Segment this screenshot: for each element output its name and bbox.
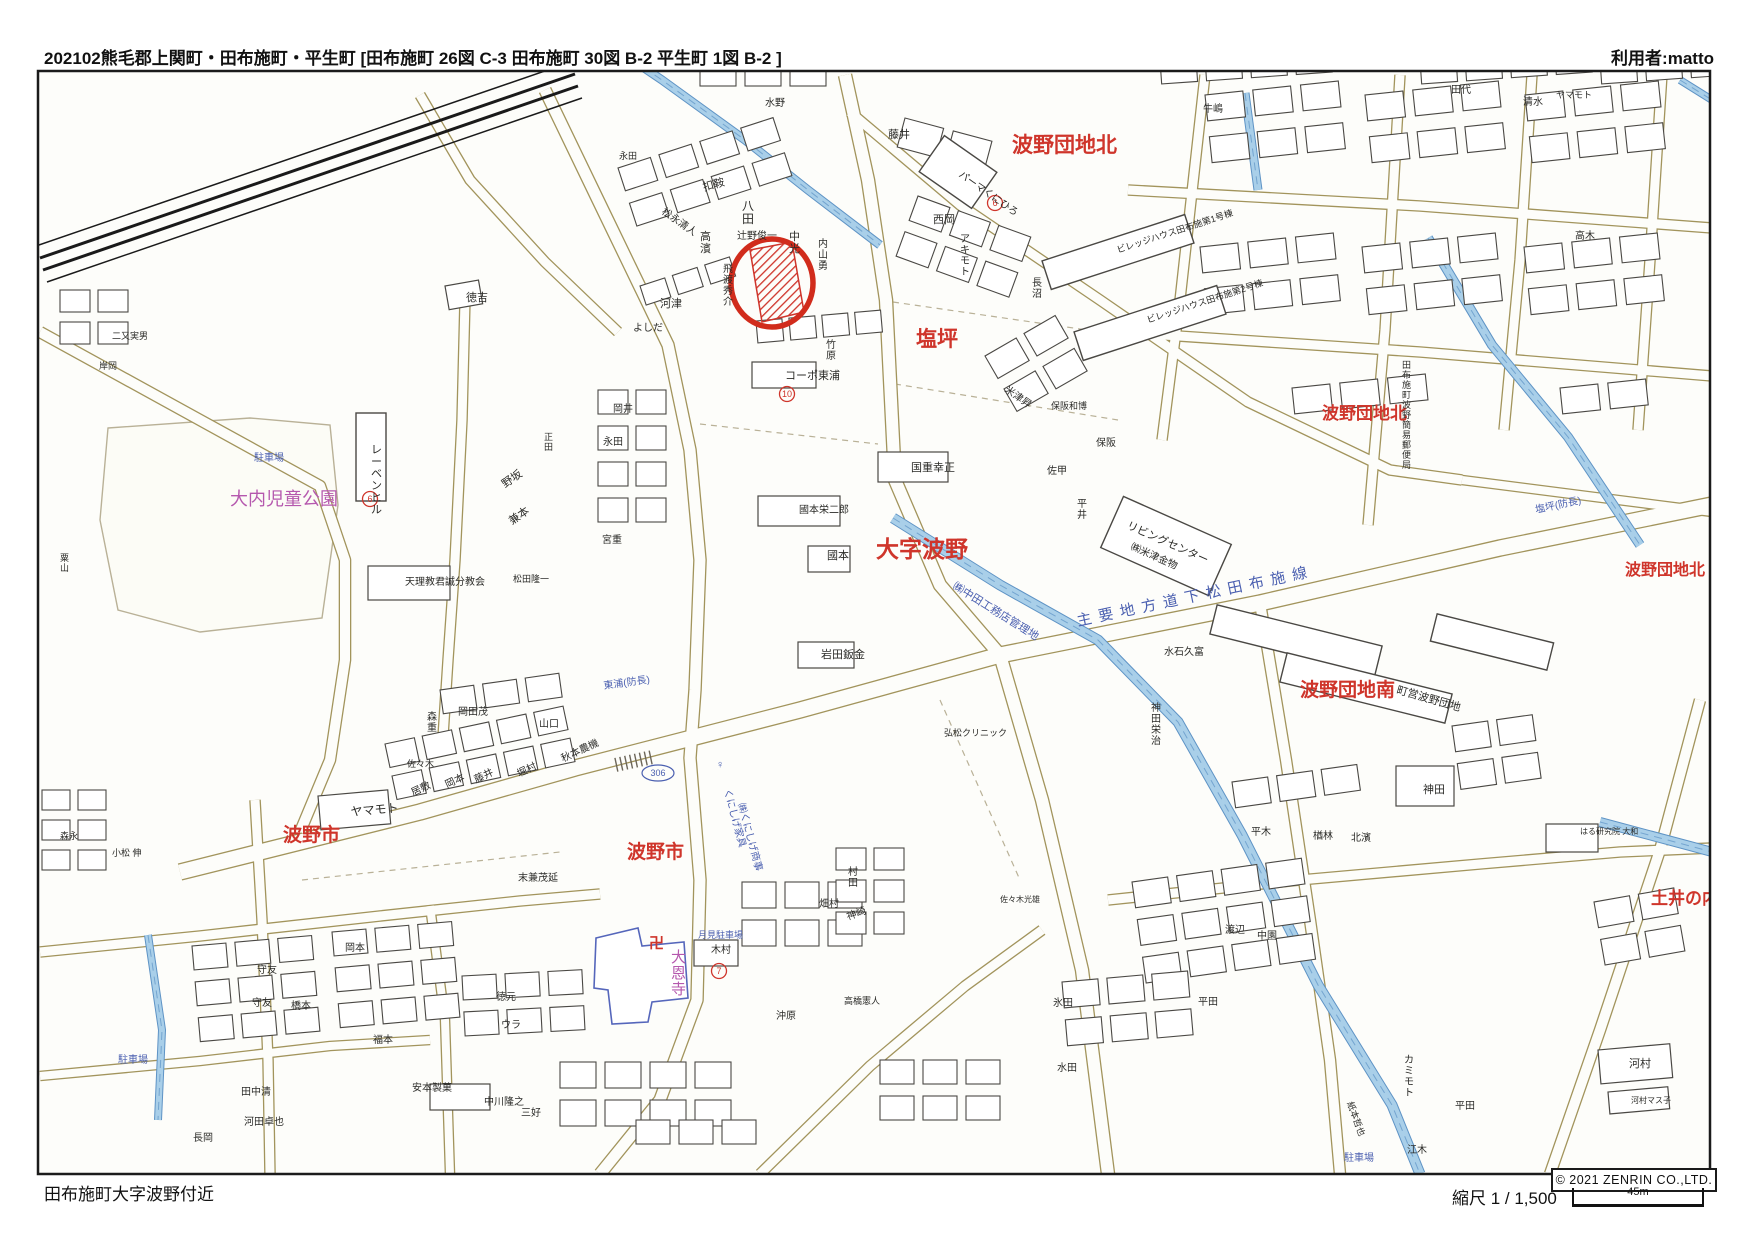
map-label: 長沼	[1032, 277, 1042, 300]
road-label: 駐車場	[1344, 1151, 1374, 1164]
map-label: 正田	[544, 432, 553, 452]
scale-label: 縮尺 1 / 1,500	[1452, 1184, 1557, 1209]
map-label: 八田	[742, 199, 754, 226]
map-label: 河津	[660, 297, 682, 310]
map-label: 楢林	[1313, 829, 1333, 842]
map-label: 平木	[1251, 826, 1271, 838]
map-label: 守友	[252, 996, 272, 1009]
map-label: 保阪和博	[1051, 400, 1087, 411]
map-label: 神田栄治	[1151, 701, 1161, 747]
district-label: 大字波野	[876, 536, 968, 562]
district-label: 塩坪	[916, 327, 958, 351]
road-label: 駐車場	[118, 1053, 148, 1066]
map-label: 森永	[60, 830, 78, 841]
svg-text:10: 10	[782, 389, 792, 399]
map-label: コーポ東浦	[785, 369, 840, 382]
map-label: 水野	[765, 97, 785, 109]
map-label: 徳元	[496, 990, 516, 1003]
map-label: 岸岡	[99, 361, 117, 371]
map-label: 守友	[257, 963, 277, 976]
map-label: 牛嶋	[1203, 102, 1223, 115]
map-label: 保阪	[1096, 436, 1116, 449]
map-label: ウラ	[501, 1019, 521, 1031]
map-label: 永田	[603, 435, 623, 448]
map-label: 弘松クリニック	[944, 727, 1007, 738]
map-label: 岡本	[345, 941, 365, 954]
map-label: 中光	[789, 230, 800, 255]
district-label: 波野団地南	[1300, 678, 1395, 701]
map-label: ヤマモト	[1556, 90, 1592, 100]
map-label: 内山勇	[818, 237, 828, 272]
map-label: 平井	[1077, 499, 1087, 521]
map-label: 氷田	[1053, 996, 1073, 1009]
map-label: 長岡	[193, 1132, 213, 1144]
map-label: 永田	[619, 150, 637, 161]
map-label: 神田	[1423, 782, 1445, 796]
road-label: 駐車場	[254, 451, 284, 464]
map-label: 森重	[427, 710, 437, 734]
map-label: 沖原	[776, 1009, 796, 1022]
map-label: 佐甲	[1047, 465, 1067, 477]
map-label: 國本	[827, 548, 849, 562]
map-label: カミモト	[1404, 1054, 1414, 1099]
map-label: 佐々木光雄	[1000, 894, 1040, 904]
map-label: 村田	[848, 865, 858, 889]
map-label: 山口	[539, 718, 559, 730]
map-label: 天理教君誠分教会	[405, 575, 485, 588]
map-label: 江木	[1407, 1144, 1427, 1156]
map-label: 三好	[521, 1107, 541, 1119]
road-label: ♀	[716, 759, 724, 771]
map-label: 国重幸正	[911, 460, 955, 474]
svg-text:306: 306	[650, 768, 665, 778]
map-label: 福本	[373, 1033, 393, 1046]
map-label: 中川隆之	[484, 1095, 524, 1108]
map-label: 渡辺	[1225, 923, 1245, 936]
district-label: 卍	[649, 935, 664, 952]
map-label: 宮重	[602, 533, 622, 546]
map-label: 田布施町波野簡易郵便局	[1402, 360, 1411, 470]
park-area	[100, 418, 338, 632]
map-label: 佐々木	[407, 758, 434, 769]
map-label: 田中清	[241, 1085, 271, 1098]
map-label: 藤井	[888, 127, 910, 141]
map-label: アキモト	[960, 234, 970, 278]
district-label: 波野団地北	[1012, 133, 1117, 157]
svg-text:7: 7	[716, 966, 721, 976]
map-label: 田代	[1451, 84, 1471, 96]
map-label: 畑村	[819, 897, 839, 910]
scale-bar: 45m	[1572, 1188, 1704, 1207]
map-label: 安本製菓	[412, 1081, 452, 1094]
district-label: 波野市	[627, 840, 684, 863]
map-label: 小松 伸	[112, 847, 142, 858]
map-label: 徳吉	[466, 291, 488, 304]
district-label: 波野団地北	[1322, 403, 1407, 423]
map-label: 二又実男	[112, 330, 148, 341]
map-label: 高橋憲人	[844, 995, 880, 1006]
map-label: 大内児童公園	[230, 489, 338, 509]
scale-distance: 45m	[1574, 1186, 1702, 1198]
road-label: 月見駐車場	[698, 929, 743, 940]
map-svg: 61067306波野団地北塩坪波野団地北大字波野波野団地北波野団地南波野市波野市…	[0, 0, 1754, 1240]
map-label: 河田卓也	[244, 1115, 284, 1128]
map-label: はる研究院 大和	[1580, 826, 1638, 836]
zenrin-map-print: 202102熊毛郡上関町・田布施町・平生町 [田布施町 26図 C-3 田布施町…	[0, 0, 1754, 1240]
map-label: 竹原	[826, 338, 836, 362]
map-label: 大恩寺	[671, 949, 686, 998]
map-label: よしだ	[633, 322, 663, 334]
map-label: 高濱	[700, 229, 711, 255]
map-label: 西岡	[933, 214, 955, 226]
map-label: 國本栄二郎	[799, 503, 849, 516]
map-label: 辻野俊一	[737, 229, 777, 242]
map-canvas: 61067306波野団地北塩坪波野団地北大字波野波野団地北波野団地南波野市波野市…	[0, 0, 1754, 1240]
map-area-name: 田布施町大字波野付近	[44, 1180, 214, 1205]
map-label: 中園	[1257, 929, 1277, 942]
map-label: 河村マス子	[1631, 1095, 1671, 1105]
district-label: 波野市	[283, 823, 340, 846]
map-label: 岡井	[613, 402, 633, 415]
map-label: 北濱	[1351, 831, 1371, 844]
map-label: 木村	[711, 943, 731, 956]
map-label: 末兼茂延	[518, 871, 558, 884]
district-label: 波野団地北	[1625, 560, 1705, 579]
map-label: レーベンヒル	[371, 444, 382, 516]
map-label: 水石久富	[1164, 645, 1204, 658]
map-label: 飛渡秀介	[723, 263, 733, 308]
map-label: 松田隆一	[513, 573, 549, 584]
map-label: 橋本	[291, 999, 311, 1012]
map-label: 岩田鈑金	[821, 647, 865, 661]
map-label: 河村	[1629, 1056, 1651, 1070]
map-label: 高木	[1575, 229, 1595, 242]
map-label: 清水	[1523, 95, 1543, 108]
map-label: 平田	[1198, 997, 1218, 1008]
map-label: 岡田茂	[458, 705, 488, 718]
map-label: 水田	[1057, 1062, 1077, 1074]
map-label: 平田	[1455, 1101, 1475, 1112]
map-label: 粟山	[60, 553, 69, 573]
